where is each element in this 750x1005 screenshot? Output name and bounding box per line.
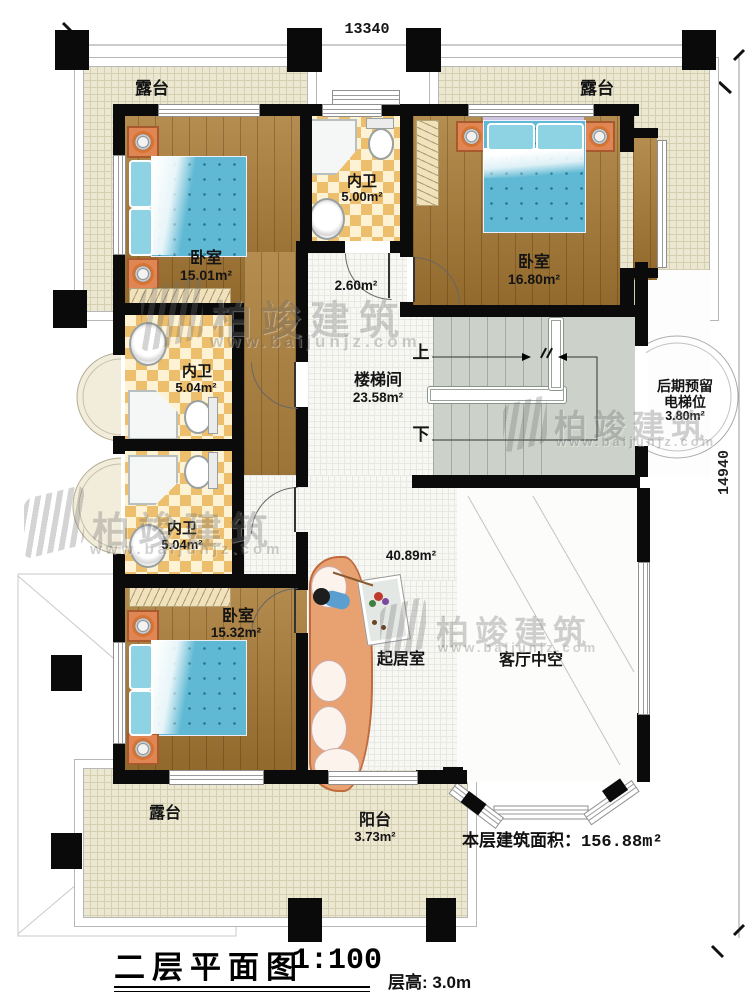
room-area-bath-low: 5.04m² bbox=[161, 538, 202, 552]
watermark-logo-icon bbox=[24, 485, 84, 560]
plan-scale: 1:100 bbox=[292, 944, 382, 978]
room-area-bath-mid: 5.04m² bbox=[175, 381, 216, 395]
bay-window-floor bbox=[633, 138, 657, 280]
door-leaf bbox=[294, 588, 296, 633]
wall-segment bbox=[296, 407, 308, 487]
wall-segment bbox=[637, 488, 650, 562]
sink bbox=[309, 198, 345, 240]
lamp-icon bbox=[132, 738, 154, 760]
floor-area-note: 本层建筑面积：156.88m² bbox=[462, 826, 663, 852]
room-label-bedroom-tr: 卧室 bbox=[518, 254, 550, 272]
room-label-terrace-tl: 露台 bbox=[135, 80, 169, 99]
stair-landing bbox=[556, 317, 635, 475]
column bbox=[682, 30, 716, 70]
wall-segment bbox=[232, 315, 244, 574]
wall-segment bbox=[262, 770, 328, 784]
balcony-door bbox=[328, 771, 418, 785]
wall-segment bbox=[296, 633, 308, 770]
wall-segment bbox=[407, 305, 640, 317]
bed-sheet bbox=[483, 148, 584, 178]
wall-segment bbox=[620, 110, 634, 152]
wall-segment bbox=[113, 574, 308, 588]
wall-segment bbox=[113, 439, 232, 451]
column bbox=[51, 655, 82, 691]
room-area-living: 40.89m² bbox=[386, 549, 436, 564]
stair-up-label: 上 bbox=[413, 344, 430, 363]
nightstand bbox=[127, 733, 159, 765]
room-area-bedroom-tr: 16.80m² bbox=[508, 272, 560, 287]
elevator-floor bbox=[648, 270, 710, 477]
dimension-right: 14940 bbox=[716, 450, 733, 495]
toilet-tank bbox=[208, 452, 218, 489]
room-label-bath-mid: 内卫 bbox=[182, 364, 212, 381]
column bbox=[287, 28, 322, 72]
plan-title: 二层平面图 bbox=[114, 942, 304, 987]
pillow bbox=[536, 123, 584, 151]
column bbox=[51, 833, 82, 869]
wall-segment bbox=[113, 303, 244, 315]
column bbox=[406, 28, 441, 72]
wall-segment bbox=[633, 128, 658, 138]
wall-segment bbox=[416, 770, 467, 784]
room-area-stairwell: 23.58m² bbox=[353, 391, 403, 406]
room-label-balcony: 阳台 bbox=[359, 812, 391, 830]
room-label-stairwell: 楼梯间 bbox=[354, 372, 402, 390]
room-area-elevator: 3.80m² bbox=[665, 410, 705, 424]
pillow bbox=[487, 123, 535, 151]
pillow bbox=[129, 690, 153, 736]
room-area-balcony: 3.73m² bbox=[354, 830, 395, 844]
wall-segment bbox=[635, 262, 648, 346]
bed-sheet bbox=[151, 156, 195, 255]
column bbox=[426, 898, 456, 942]
wall-segment bbox=[296, 241, 308, 362]
lamp-icon bbox=[132, 615, 154, 637]
column bbox=[53, 290, 87, 328]
person-head bbox=[313, 588, 330, 605]
lamp-icon bbox=[132, 131, 154, 153]
door-leaf bbox=[388, 253, 390, 298]
toilet bbox=[368, 128, 394, 160]
room-area-corridor: 2.60m² bbox=[335, 279, 378, 294]
room-label-elevator-1: 后期预留 bbox=[657, 379, 713, 394]
wall-segment bbox=[296, 532, 308, 574]
sofa-cushion bbox=[311, 660, 347, 702]
table-item bbox=[372, 620, 377, 625]
floor-area-value: 156.88m² bbox=[581, 833, 663, 852]
room-label-void: 客厅中空 bbox=[499, 652, 563, 670]
nightstand bbox=[127, 610, 159, 642]
room-area-bedroom-bl: 15.32m² bbox=[211, 626, 261, 641]
window bbox=[158, 104, 260, 117]
floor-plan: 露台 露台 卧室 15.01m² 内卫 5.00m² 卧室 16.80m² 2.… bbox=[0, 0, 750, 1005]
door-leaf bbox=[294, 487, 296, 532]
lamp-icon bbox=[589, 126, 610, 147]
dimension-top: 13340 bbox=[344, 22, 389, 39]
stair-arrow-up bbox=[522, 353, 531, 361]
window bbox=[169, 770, 264, 785]
pillow bbox=[129, 160, 153, 208]
room-label-terrace-bottom: 露台 bbox=[149, 805, 181, 823]
sofa-cushion bbox=[311, 706, 347, 752]
stair-down-label: 下 bbox=[413, 426, 430, 445]
room-label-bath-low: 内卫 bbox=[167, 521, 197, 538]
stair-handrail bbox=[427, 386, 567, 404]
wall-segment bbox=[412, 475, 640, 488]
nightstand bbox=[127, 126, 159, 158]
door-leaf bbox=[294, 362, 296, 407]
nightstand bbox=[127, 258, 159, 290]
door-leaf bbox=[413, 257, 415, 302]
window bbox=[113, 155, 126, 255]
wardrobe bbox=[416, 120, 439, 206]
floor-area-label: 本层建筑面积： bbox=[462, 831, 581, 850]
wall-segment bbox=[400, 116, 413, 257]
nightstand bbox=[584, 121, 615, 152]
sink bbox=[129, 322, 167, 366]
table-item bbox=[381, 625, 386, 630]
room-label-bedroom-bl: 卧室 bbox=[222, 608, 254, 626]
flowers bbox=[369, 600, 376, 607]
column bbox=[55, 30, 89, 70]
room-area-bedroom-tl: 15.01m² bbox=[180, 268, 232, 283]
pillow bbox=[129, 644, 153, 690]
room-label-terrace-tr: 露台 bbox=[580, 80, 614, 99]
window bbox=[657, 140, 667, 268]
toilet-tank bbox=[208, 397, 218, 434]
flowers bbox=[382, 598, 389, 605]
room-label-living: 起居室 bbox=[377, 651, 425, 669]
column bbox=[288, 898, 322, 942]
void-floor bbox=[457, 488, 637, 782]
entry-canopy bbox=[332, 90, 400, 105]
wall-segment bbox=[620, 268, 634, 317]
lamp-icon bbox=[461, 126, 482, 147]
wall-segment bbox=[635, 446, 648, 477]
room-label-bedroom-tl: 卧室 bbox=[190, 250, 222, 268]
window bbox=[322, 104, 382, 117]
lamp-icon bbox=[132, 263, 154, 285]
window bbox=[113, 642, 126, 744]
pillow bbox=[129, 208, 153, 256]
title-underline bbox=[114, 986, 370, 992]
window bbox=[638, 562, 650, 715]
window bbox=[468, 104, 594, 117]
wall-segment bbox=[113, 770, 169, 784]
wall-segment bbox=[637, 713, 650, 782]
stair-arrow-down bbox=[558, 353, 567, 361]
floor-height-note: 层高: 3.0m bbox=[388, 968, 471, 993]
wall-segment bbox=[300, 241, 345, 253]
wall-segment bbox=[300, 116, 312, 241]
room-area-bath-top: 5.00m² bbox=[341, 190, 382, 204]
bed-sheet bbox=[151, 640, 195, 734]
